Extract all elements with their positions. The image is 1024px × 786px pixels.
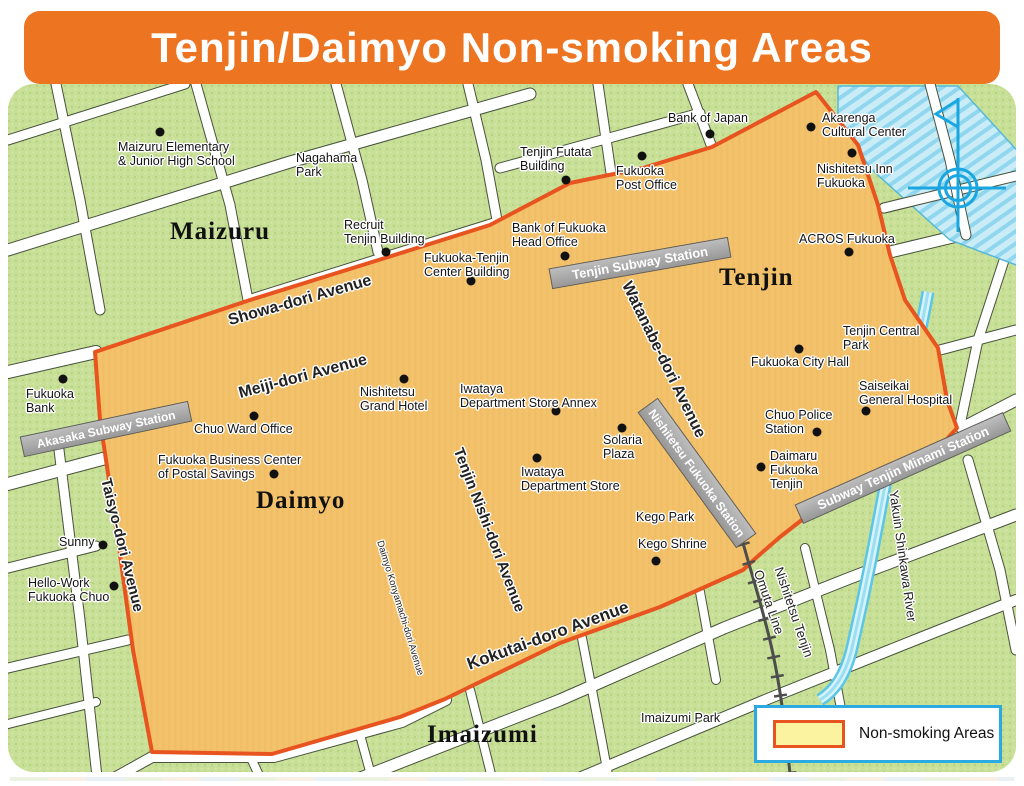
poi-fukuoka-city-hall: Fukuoka City Hall xyxy=(751,356,849,370)
poi-fukuoka-bank: FukuokaBank xyxy=(26,388,74,416)
poi-nishitetsu-grand-hotel: NishitetsuGrand Hotel xyxy=(360,386,427,414)
poi-nishitetsu-inn-fukuoka: Nishitetsu InnFukuoka xyxy=(817,163,893,191)
poi-tenjin-central-park: Tenjin CentralPark xyxy=(843,325,919,353)
poi-fukuoka-post-office: FukuokaPost Office xyxy=(616,165,677,193)
poi-dot xyxy=(757,463,766,472)
poi-sunny: Sunny xyxy=(59,536,94,550)
poi-kego-park: Kego Park xyxy=(636,511,694,525)
poi-kego-shrine: Kego Shrine xyxy=(638,538,707,552)
street-showa-dori: Showa-dori Avenue xyxy=(226,272,373,330)
poi-chuo-police-station: Chuo PoliceStation xyxy=(765,409,832,437)
title-banner: Tenjin/Daimyo Non-smoking Areas xyxy=(24,11,1000,84)
street-meiji-dori: Meiji-dori Avenue xyxy=(237,351,369,403)
poi-solaria-plaza: SolariaPlaza xyxy=(603,434,642,462)
poi-maizuru-school: Maizuru Elementary& Junior High School xyxy=(118,141,235,169)
poi-dot xyxy=(400,375,409,384)
poi-imaizumi-park: Imaizumi Park xyxy=(641,712,720,726)
poi-dot xyxy=(618,424,627,433)
poi-hello-work-fukuoka-chuo: Hello-WorkFukuoka Chuo xyxy=(28,577,109,605)
street-daimyo-konyamachi-dori: Daimyo Konyamachi-dori Avenue xyxy=(374,539,426,676)
poi-dot xyxy=(561,252,570,261)
legend: Non-smoking Areas xyxy=(754,705,1002,763)
district-daimyo: Daimyo xyxy=(256,487,345,515)
poi-iwataya-department-store: IwatayaDepartment Store xyxy=(521,466,620,494)
page: Tenjin/Daimyo Non-smoking Areas xyxy=(0,0,1024,786)
street-kokutai-doro: Kokutai-doro Avenue xyxy=(464,597,631,674)
district-tenjin: Tenjin xyxy=(719,264,794,292)
poi-dot xyxy=(848,149,857,158)
poi-dot xyxy=(156,128,165,137)
poi-dot xyxy=(382,248,391,257)
poi-bank-of-fukuoka-head-office: Bank of FukuokaHead Office xyxy=(512,222,606,250)
page-title: Tenjin/Daimyo Non-smoking Areas xyxy=(151,24,873,72)
poi-dot xyxy=(862,407,871,416)
poi-daimaru-fukuoka-tenjin: DaimaruFukuokaTenjin xyxy=(770,450,818,491)
poi-tenjin-futata-building: Tenjin FutataBuilding xyxy=(520,146,592,174)
legend-label: Non-smoking Areas xyxy=(859,725,994,743)
poi-nagahama-park: NagahamaPark xyxy=(296,152,357,180)
poi-dot xyxy=(652,557,661,566)
poi-fukuoka-business-center-postal-savings: Fukuoka Business Centerof Postal Savings xyxy=(158,454,301,482)
poi-fukuoka-tenjin-center-building: Fukuoka-TenjinCenter Building xyxy=(424,252,509,280)
district-maizuru: Maizuru xyxy=(170,218,270,246)
label-overlay: Maizuru Tenjin Daimyo Imaizumi Showa-dor… xyxy=(0,0,1024,786)
poi-dot xyxy=(562,176,571,185)
river-label: Yakuin Shinkawa River xyxy=(886,489,919,623)
poi-saiseikai-general-hospital: SaiseikaiGeneral Hospital xyxy=(859,380,952,408)
poi-akarenga-cultural-center: AkarengaCultural Center xyxy=(822,112,906,140)
district-imaizumi: Imaizumi xyxy=(427,721,538,749)
legend-swatch-nonsmoking xyxy=(773,720,845,748)
poi-dot xyxy=(59,375,68,384)
poi-dot xyxy=(99,541,108,550)
poi-dot xyxy=(638,152,647,161)
poi-acros-fukuoka: ACROS Fukuoka xyxy=(799,233,895,247)
map-area: Maizuru Tenjin Daimyo Imaizumi Showa-dor… xyxy=(0,0,1024,786)
poi-chuo-ward-office: Chuo Ward Office xyxy=(194,423,293,437)
poi-dot xyxy=(795,345,804,354)
poi-dot xyxy=(807,123,816,132)
poi-dot xyxy=(110,582,119,591)
poi-bank-of-japan: Bank of Japan xyxy=(668,112,748,126)
street-tenjin-nishi-dori: Tenjin Nishi-dori Avenue xyxy=(450,446,528,615)
poi-dot xyxy=(845,248,854,257)
poi-recruit-tenjin-building: RecruitTenjin Building xyxy=(344,219,425,247)
poi-dot xyxy=(533,454,542,463)
poi-dot xyxy=(250,412,259,421)
poi-dot xyxy=(706,130,715,139)
poi-iwataya-department-store-annex: IwatayaDepartment Store Annex xyxy=(460,383,597,411)
